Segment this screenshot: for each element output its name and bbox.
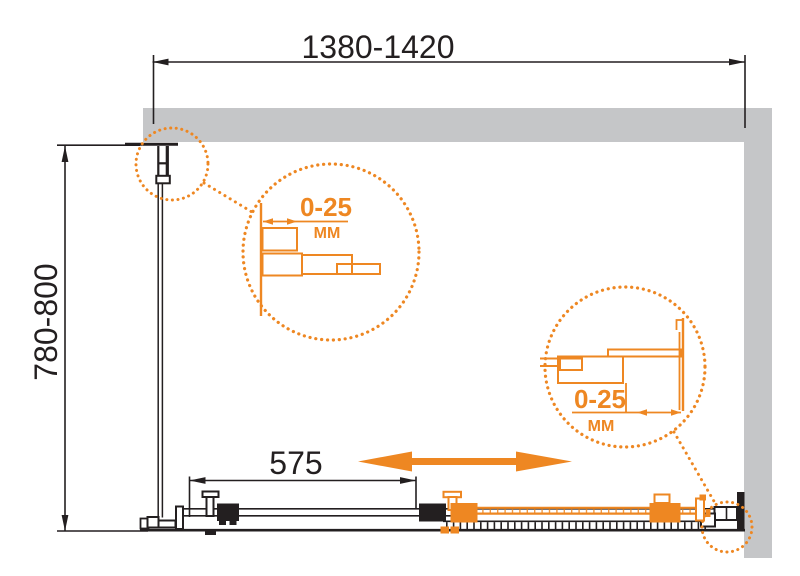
profile-inner-notch <box>560 359 582 371</box>
corner-upright <box>176 507 183 530</box>
wall-end-post <box>737 492 745 531</box>
fixed-roller-block <box>217 504 239 522</box>
profile-top-bar <box>608 350 681 357</box>
depth-dimension-label: 780-800 <box>28 263 64 380</box>
profile-lower-box <box>263 254 303 276</box>
door-dimension-label: 575 <box>269 445 322 481</box>
detail-magnifier-circle <box>545 287 705 447</box>
fixed-bracket-stem <box>207 497 214 516</box>
door-clip-left-a <box>441 527 450 534</box>
corner-step <box>159 521 176 528</box>
profile-upper-box <box>263 228 298 251</box>
door-roller-right <box>650 503 681 523</box>
diagram-canvas: 1380-1420 780-800 <box>0 0 800 576</box>
detail-leader-line <box>674 432 715 503</box>
profile-panel-extension <box>337 264 380 274</box>
fixed-roller-foot-right <box>230 521 237 525</box>
width-dimension-label: 1380-1420 <box>301 29 454 65</box>
detail-callout-1: 0-25 ММ <box>136 128 419 340</box>
adjustment-range-label: 0-25 <box>300 192 352 222</box>
slide-direction-arrow-icon <box>358 452 572 472</box>
side-panel <box>125 144 178 517</box>
adjustment-unit-label: ММ <box>588 418 615 435</box>
door-bracket-cap-right <box>655 495 670 504</box>
detail-1-profile: 0-25 ММ <box>261 192 380 316</box>
door-end-cap <box>696 499 704 521</box>
adjustment-unit-label: ММ <box>314 225 341 242</box>
door-end-tab <box>700 495 707 501</box>
fixed-roller-foot-left <box>219 521 226 525</box>
door-clip-left-b <box>451 527 460 534</box>
wall-top <box>143 108 772 142</box>
detail-leader-line <box>204 183 252 212</box>
shower-enclosure-diagram: 1380-1420 780-800 <box>0 0 800 576</box>
corner-block <box>148 517 159 528</box>
dimension-depth: 780-800 <box>28 145 148 531</box>
door-roller-left <box>451 503 478 523</box>
mid-roller-block <box>419 504 446 522</box>
fixed-bracket-base-tab <box>205 531 216 536</box>
wall-right <box>744 108 772 558</box>
walls <box>143 108 772 558</box>
wall-profile-foot <box>156 176 170 184</box>
detail-magnifier-circle <box>243 164 419 340</box>
adjustment-range-label: 0-25 <box>574 384 626 414</box>
detail-2-profile: 0-25 ММ <box>540 318 683 435</box>
